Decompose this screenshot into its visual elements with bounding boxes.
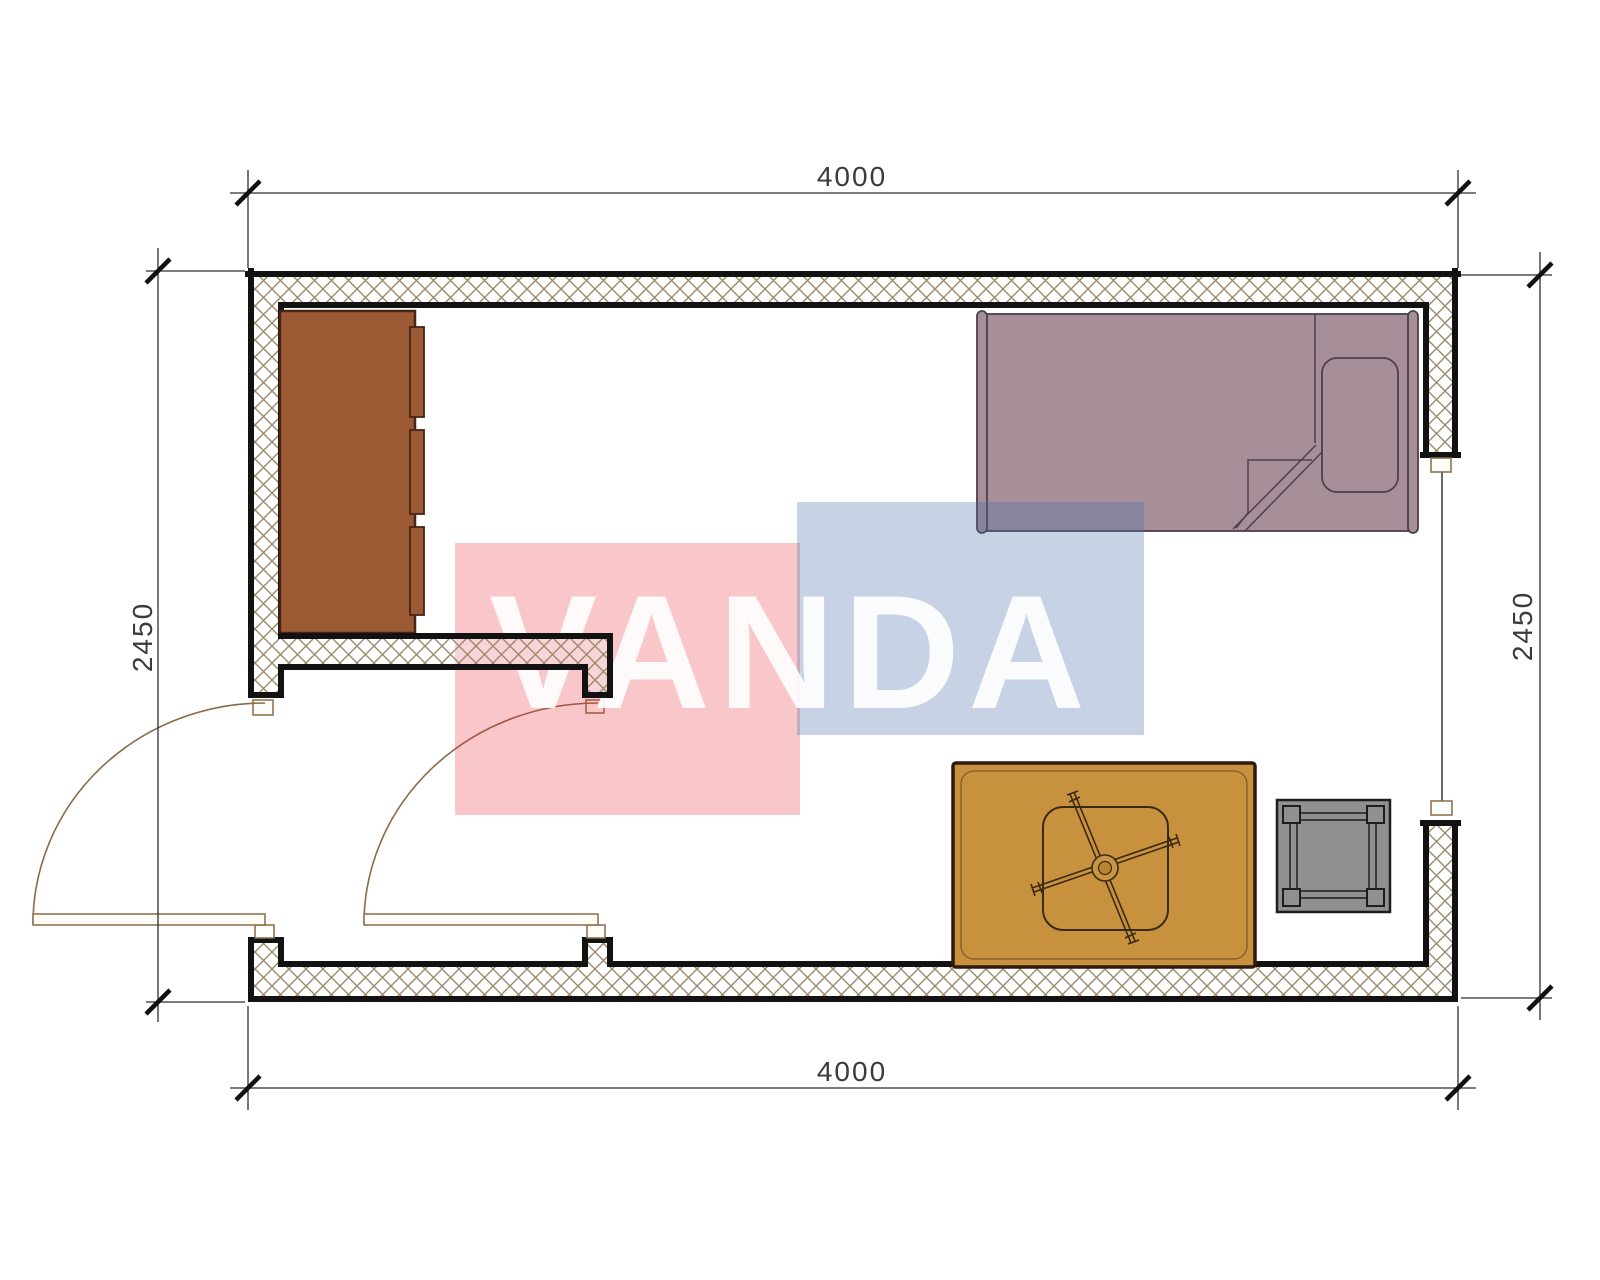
bed bbox=[977, 311, 1418, 533]
entry-door bbox=[33, 700, 274, 938]
pillow bbox=[1322, 358, 1398, 492]
floor-plan-canvas: VANDA 4000 4000 2450 2450 bbox=[0, 0, 1600, 1280]
watermark-text: VANDA bbox=[489, 572, 1093, 734]
window bbox=[1431, 458, 1452, 815]
dimension-right: 2450 bbox=[1507, 591, 1539, 661]
wardrobe bbox=[280, 311, 424, 633]
stool bbox=[1277, 800, 1390, 912]
dimension-left: 2450 bbox=[127, 602, 159, 672]
dimension-top: 4000 bbox=[817, 161, 887, 193]
dimension-bottom: 4000 bbox=[817, 1056, 887, 1088]
